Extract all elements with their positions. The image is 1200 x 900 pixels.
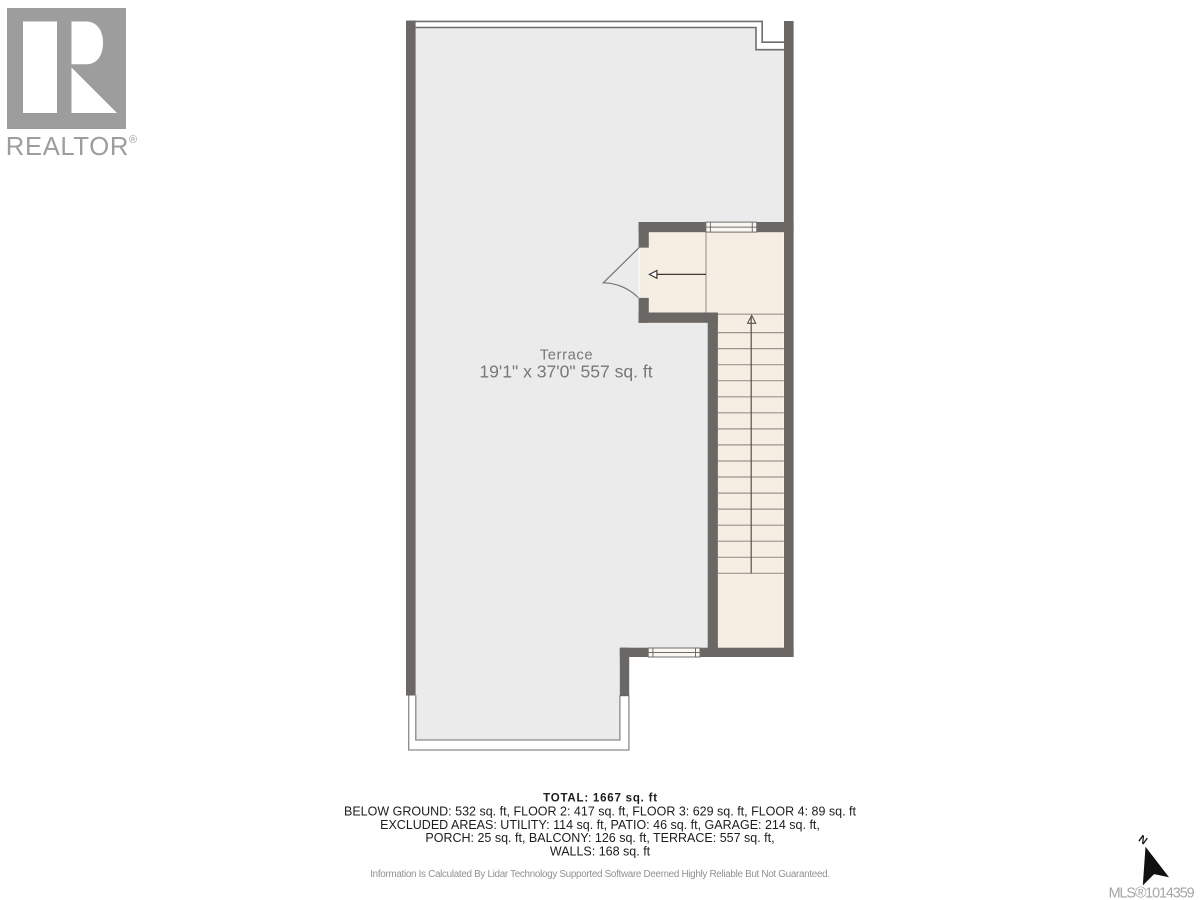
svg-text:TOTAL: 1667 sq. ft: TOTAL: 1667 sq. ft	[543, 793, 658, 805]
svg-text:MLS®1014359: MLS®1014359	[1109, 885, 1195, 900]
svg-text:N: N	[1136, 833, 1150, 847]
svg-text:BELOW GROUND: 532 sq. ft, FLOO: BELOW GROUND: 532 sq. ft, FLOOR 2: 417 s…	[344, 805, 857, 819]
svg-text:PORCH: 25 sq. ft, BALCONY: 126: PORCH: 25 sq. ft, BALCONY: 126 sq. ft, T…	[425, 831, 774, 845]
svg-text:WALLS: 168 sq. ft: WALLS: 168 sq. ft	[550, 844, 651, 858]
svg-text:Information Is Calculated By L: Information Is Calculated By Lidar Techn…	[370, 869, 830, 880]
svg-text:®: ®	[129, 134, 137, 146]
svg-text:19'1" x 37'0" 557 sq. ft: 19'1" x 37'0" 557 sq. ft	[479, 361, 652, 381]
svg-text:REALTOR: REALTOR	[6, 133, 129, 161]
svg-text:EXCLUDED AREAS: UTILITY: 114 s: EXCLUDED AREAS: UTILITY: 114 sq. ft, PAT…	[380, 818, 820, 832]
